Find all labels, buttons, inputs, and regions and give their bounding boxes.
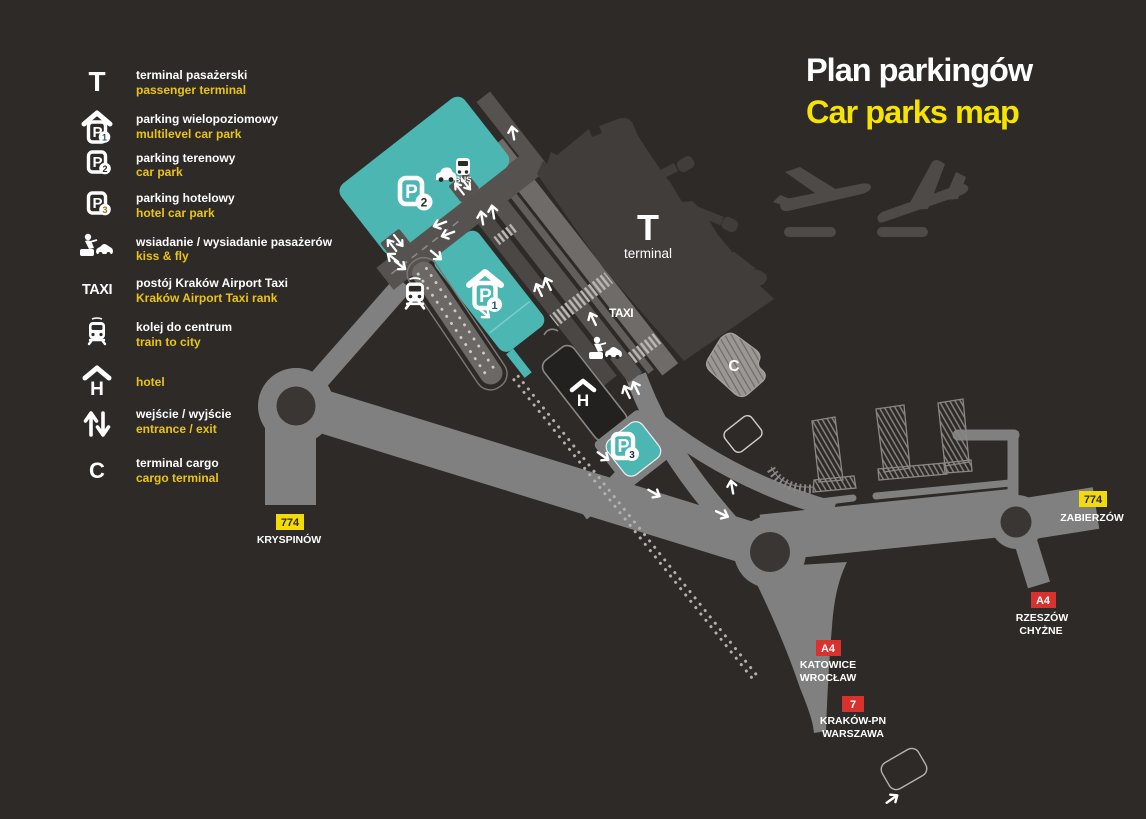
svg-text:ZABIERZÓW: ZABIERZÓW	[1060, 511, 1124, 524]
svg-text:1: 1	[102, 133, 107, 143]
svg-text:3: 3	[102, 205, 107, 215]
svg-text:2: 2	[421, 196, 428, 210]
svg-text:774: 774	[281, 517, 300, 529]
svg-text:Car parks map: Car parks map	[806, 94, 1019, 130]
svg-text:A4: A4	[1036, 595, 1051, 607]
svg-text:KATOWICE: KATOWICE	[800, 659, 856, 671]
svg-text:terminal pasażerski: terminal pasażerski	[136, 68, 247, 82]
svg-text:H: H	[577, 391, 589, 410]
svg-text:Plan parkingów: Plan parkingów	[806, 52, 1034, 88]
svg-text:C: C	[728, 358, 739, 375]
svg-text:entrance / exit: entrance / exit	[136, 422, 217, 436]
svg-text:hotel car park: hotel car park	[136, 206, 215, 220]
svg-text:train to city: train to city	[136, 335, 201, 349]
svg-text:Kraków Airport Taxi rank: Kraków Airport Taxi rank	[136, 291, 278, 305]
svg-text:CHYŻNE: CHYŻNE	[1019, 624, 1062, 637]
svg-text:BUS: BUS	[455, 176, 473, 185]
svg-text:parking hotelowy: parking hotelowy	[136, 191, 235, 205]
svg-text:wejście / wyjście: wejście / wyjście	[135, 407, 232, 421]
svg-text:A4: A4	[821, 643, 836, 655]
svg-text:H: H	[90, 379, 104, 400]
svg-text:T: T	[88, 66, 105, 97]
svg-text:parking terenowy: parking terenowy	[136, 151, 236, 165]
svg-text:cargo terminal: cargo terminal	[136, 471, 219, 485]
svg-text:2: 2	[102, 164, 107, 174]
svg-text:multilevel car park: multilevel car park	[136, 127, 242, 141]
svg-text:terminal cargo: terminal cargo	[136, 456, 219, 470]
svg-text:7: 7	[850, 699, 856, 711]
svg-text:WARSZAWA: WARSZAWA	[822, 728, 884, 740]
svg-text:774: 774	[1084, 494, 1103, 506]
svg-text:RZESZÓW: RZESZÓW	[1016, 611, 1069, 624]
svg-text:T: T	[637, 207, 659, 248]
svg-text:C: C	[89, 458, 105, 483]
svg-text:car park: car park	[136, 165, 183, 179]
svg-text:KRAKÓW-PN: KRAKÓW-PN	[820, 714, 886, 727]
svg-text:kolej do centrum: kolej do centrum	[136, 320, 232, 334]
svg-text:kiss & fly: kiss & fly	[136, 249, 189, 263]
svg-text:TAXI: TAXI	[609, 306, 633, 320]
svg-text:hotel: hotel	[136, 375, 165, 389]
svg-text:wsiadanie / wysiadanie pasażer: wsiadanie / wysiadanie pasażerów	[135, 235, 333, 249]
svg-text:WROCŁAW: WROCŁAW	[800, 672, 857, 684]
svg-text:3: 3	[629, 450, 635, 461]
svg-text:1: 1	[491, 300, 497, 312]
svg-text:TAXI: TAXI	[82, 282, 112, 298]
svg-text:passenger terminal: passenger terminal	[136, 83, 246, 97]
svg-text:parking wielopoziomowy: parking wielopoziomowy	[136, 112, 278, 126]
svg-text:KRYSPINÓW: KRYSPINÓW	[257, 533, 321, 546]
svg-text:postój Kraków Airport Taxi: postój Kraków Airport Taxi	[136, 276, 288, 290]
svg-text:terminal: terminal	[624, 246, 672, 261]
